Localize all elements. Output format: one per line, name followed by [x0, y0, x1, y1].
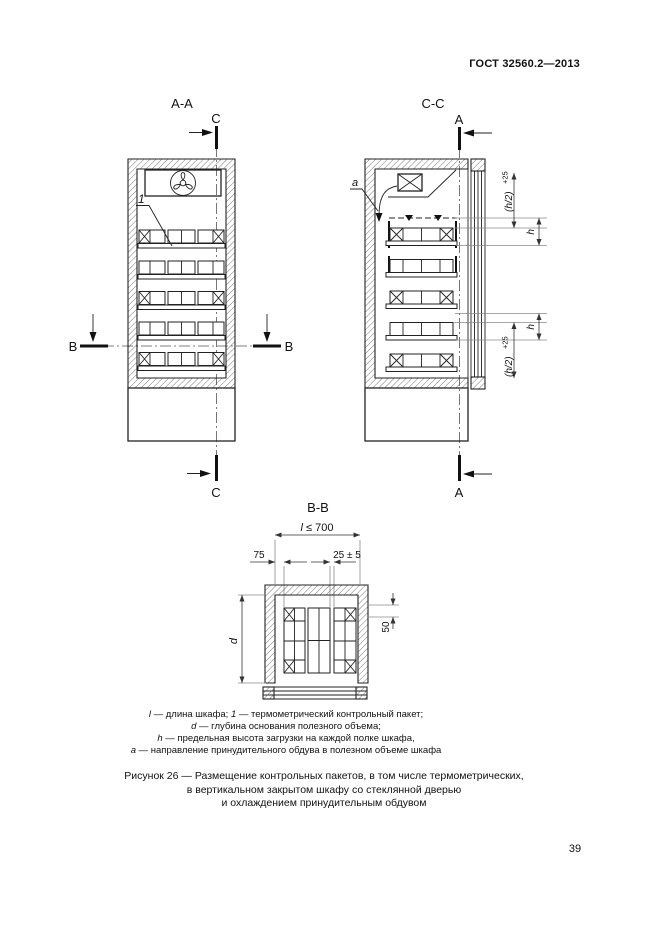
legend-symbol-d: d — [191, 721, 196, 732]
dim-length-symbol: l — [301, 522, 304, 534]
dim-h-half-tol-bottom: +25 — [501, 336, 510, 349]
bb-package-column-middle — [308, 608, 330, 673]
bb-glass-door — [263, 687, 367, 699]
legend-line-3: h — предельная высота загрузки на каждой… — [0, 733, 572, 745]
caption-line-3: и охлаждением принудительным обдувом — [0, 797, 648, 811]
view-title-aa: A-A — [171, 96, 193, 111]
dim-h-half-top: (h/2) — [504, 191, 515, 212]
aa-shelf-5 — [138, 353, 225, 371]
cc-pedestal — [365, 388, 468, 441]
cc-shelf-4 — [386, 323, 457, 341]
dim-h-half-bottom: (h/2) — [504, 356, 515, 377]
figure-caption: Рисунок 26 — Размещение контрольных паке… — [0, 770, 648, 811]
item-1-label: 1 — [138, 192, 145, 206]
page-number: 39 — [560, 843, 590, 855]
section-letter-c-bottom: C — [211, 485, 220, 500]
aa-shelf-2 — [138, 261, 225, 279]
dim-h-top: h — [526, 229, 537, 235]
bb-package-column-left — [284, 608, 305, 673]
legend-symbol-1: 1 — [231, 709, 236, 720]
view-title-cc: C-C — [421, 96, 444, 111]
legend-line-4: a — направление принудительного обдува в… — [0, 745, 572, 757]
cc-shelf-2 — [386, 260, 457, 278]
glass-door — [471, 159, 485, 389]
legend-desc-1: — термометрический контрольный пакет; — [239, 709, 423, 720]
caption-line-1: Рисунок 26 — Размещение контрольных паке… — [0, 770, 648, 784]
dim-h-half-tol-top: +25 — [501, 171, 510, 184]
aa-pedestal — [128, 388, 235, 441]
section-letter-a-top: A — [455, 112, 464, 127]
view-title-bb: B-B — [307, 500, 329, 515]
bb-package-column-right — [334, 608, 356, 673]
cc-shelf-3 — [386, 291, 457, 309]
section-letter-a-bottom: A — [455, 485, 464, 500]
dim-offset-75: 75 — [253, 550, 265, 561]
legend-line-2: d — глубина основания полезного объема; — [0, 721, 572, 733]
fan-icon — [171, 171, 196, 196]
legend-desc-a: — направление принудительного обдува в п… — [139, 745, 442, 756]
aa-shelf-3 — [138, 292, 225, 310]
section-letter-c-top: C — [211, 111, 220, 126]
aa-shelf-1 — [138, 230, 225, 248]
view-cc: a — [350, 96, 547, 500]
legend-desc-h: — предельная высота загрузки на каждой п… — [165, 733, 414, 744]
cc-dim-bottom: h (h/2) +25 — [453, 314, 547, 379]
dim-h-bottom: h — [526, 324, 537, 330]
cc-dim-top: h (h/2) +25 — [453, 171, 547, 245]
dim-back-offset-50: 50 — [381, 621, 392, 633]
aa-fan-panel — [145, 170, 221, 196]
view-aa: 1 C C B B A-A — [69, 96, 294, 500]
dim-gap-25: 25 ± 5 — [333, 550, 361, 561]
legend-line-1: l — длина шкафа; 1 — термометрический ко… — [0, 709, 572, 721]
caption-line-2: в вертикальном закрытом шкафу со стеклян… — [0, 784, 648, 798]
legend-symbol-h: h — [157, 733, 162, 744]
view-bb: B-B l ≤ 700 75 25 ± 5 — [228, 500, 399, 699]
dim-length-value: ≤ 700 — [306, 522, 333, 534]
section-letter-b-left: B — [69, 339, 78, 354]
legend-symbol-l: l — [149, 709, 151, 720]
figure-legend: l — длина шкафа; 1 — термометрический ко… — [0, 709, 572, 757]
aa-shelf-4 — [138, 322, 225, 340]
airflow-arrow — [379, 186, 397, 216]
cc-fan-unit-cross — [398, 174, 422, 191]
legend-symbol-a: a — [131, 745, 136, 756]
dim-depth: d — [228, 637, 240, 644]
cc-shelf-5 — [386, 354, 457, 372]
section-letter-b-right: B — [285, 339, 294, 354]
legend-desc-l: — длина шкафа; — [154, 709, 229, 720]
document-page: ГОСТ 32560.2—2013 — [0, 0, 661, 935]
airflow-label: a — [352, 177, 358, 189]
legend-desc-d: — глубина основания полезного объема; — [199, 721, 381, 732]
cc-shelf-1 — [386, 228, 457, 246]
